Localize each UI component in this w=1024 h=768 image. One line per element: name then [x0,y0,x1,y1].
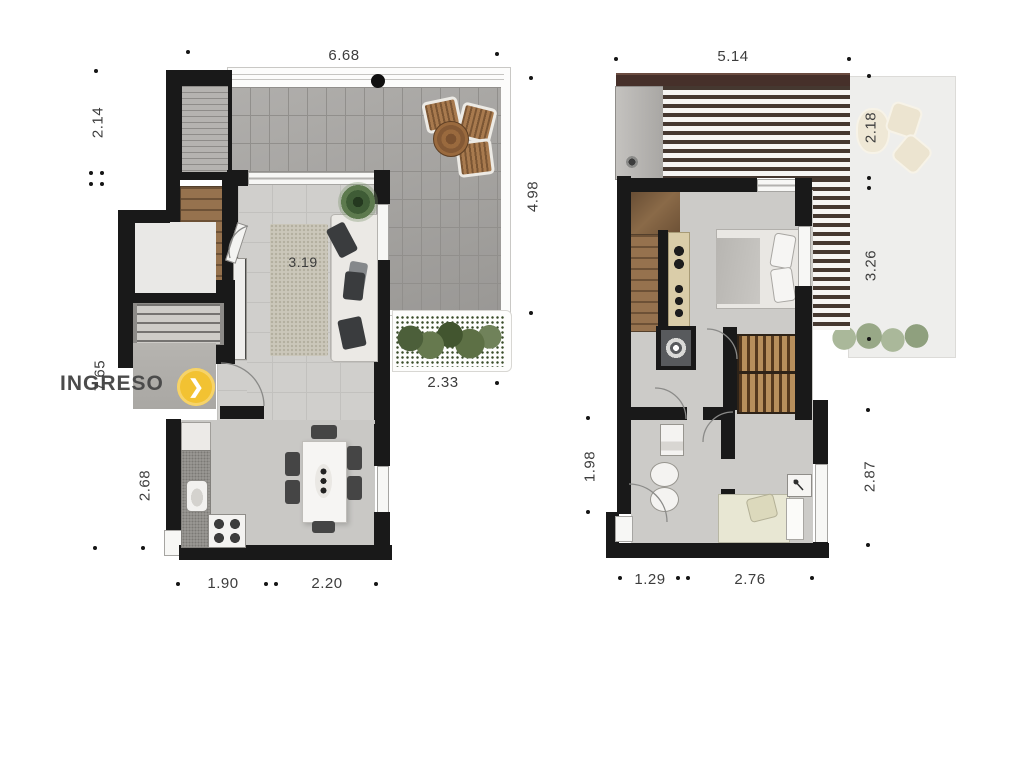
bath-top-wall-stub [703,407,723,420]
dim-label: 7.65 [92,351,109,401]
bath-sink-icon [660,424,684,456]
kitchen-left-wall [166,419,181,532]
tick-dot [495,381,499,385]
pergola-panel [615,86,665,180]
bed-pillow [770,267,797,304]
entry-bench-icon [133,303,224,345]
tick-dot [866,543,870,547]
dim-label: 6.68 [314,47,374,64]
dining-chair [285,480,300,504]
dim-label: 2.87 [862,452,879,502]
plant-icon [338,182,378,222]
nightstand [787,474,812,497]
dining-chair [347,446,362,470]
pergola-panel-drain [626,156,638,168]
bedroom2-right-wall-corner [813,542,828,558]
tick-dot [847,57,851,61]
entrance-label: INGRESO [60,372,178,396]
tick-dot [495,52,499,56]
dim-label: 2.33 [413,374,473,391]
floorplan-canvas: INGRESO ❯ [0,0,1024,768]
tick-dot [274,582,278,586]
wardrobe-icon [737,334,801,373]
dining-chair [311,425,337,439]
sideboard [233,258,247,360]
dim-label: 5.14 [703,48,763,65]
dining-right-wall-lower [374,512,390,554]
table-centerpiece [315,464,332,498]
kitchen-upper-cabinet [181,422,211,452]
tick-dot [866,408,870,412]
pergola-side-slats [812,178,850,330]
bidet-icon [650,487,679,512]
tick-dot [586,510,590,514]
dim-label: 3.19 [273,254,333,270]
patio-round-table-icon [433,121,469,157]
dining-chair [347,476,362,500]
chevron-right-icon: ❯ [188,378,204,397]
vestibule-upper-floor [135,222,216,293]
upper-left-wall [617,176,631,514]
upper-left-door-frame [615,516,633,542]
dim-label: 4.98 [525,172,542,222]
toilet-icon [650,462,679,487]
dim-label: 3.26 [863,241,880,291]
stove-icon [208,514,246,548]
bath-right-wall [721,407,735,459]
tick-dot [676,576,680,580]
living-topleft-wall [227,170,248,186]
dining-right-wall-upper [374,424,390,466]
tick-dot [176,582,180,586]
bedroom-top-wall [617,178,757,192]
dining-right-window [377,466,389,516]
bath-top-wall [629,407,687,420]
bedroom2-right-window [815,464,828,546]
tick-dot [867,74,871,78]
dining-chair [285,452,300,476]
tick-dot [810,576,814,580]
closet-divider-wall [723,327,737,410]
bedroom2-right-wall-upper [813,400,828,464]
tick-dot [93,546,97,550]
upper-bottom-wall [617,543,829,558]
terrace-column-dot [371,74,385,88]
dining-chair [312,521,335,533]
wardrobe-icon [737,372,801,414]
tick-dot [618,576,622,580]
living-right-window [377,204,389,262]
tick-dot [374,582,378,586]
dim-label: 2.68 [137,461,154,511]
tick-dot [100,171,104,175]
tick-dot [100,182,104,186]
bedroom-right-wall-upper [795,178,812,226]
living-rug [270,224,328,356]
stair-side-wall [658,230,668,330]
terrace-railing-lines [232,72,504,82]
sofa-cushion [343,271,366,301]
tick-dot [686,576,690,580]
kitchen-sink-icon [186,480,208,512]
bed-blanket [716,238,760,304]
tick-dot [529,311,533,315]
tick-dot [141,546,145,550]
tick-dot [867,337,871,341]
tick-dot [867,186,871,190]
dim-label: 1.29 [620,571,680,588]
tick-dot [89,182,93,186]
bedroom-right-window [798,226,811,288]
dim-label: 1.90 [193,575,253,592]
tick-dot [867,176,871,180]
tick-dot [264,582,268,586]
dim-label: 2.18 [863,103,880,153]
dim-label: 2.14 [90,98,107,148]
pergola-slats [663,86,850,178]
bed2-headboard [786,498,804,540]
dim-label: 1.98 [582,442,599,492]
storage-room-floor [182,86,228,172]
entrance-arrow-badge: ❯ [177,368,215,406]
tick-dot [94,69,98,73]
dim-label: 2.20 [297,575,357,592]
tick-dot [186,50,190,54]
bedroom-right-wall-lower [795,286,812,420]
washing-machine-icon [661,330,691,366]
dim-label: 2.76 [720,571,780,588]
tick-dot [586,416,590,420]
kitchenette-counter [668,232,690,332]
entry-bottom-wall [220,406,264,419]
tick-dot [89,171,93,175]
tick-dot [529,76,533,80]
tick-dot [614,57,618,61]
planter-greenery-icon [395,315,505,367]
